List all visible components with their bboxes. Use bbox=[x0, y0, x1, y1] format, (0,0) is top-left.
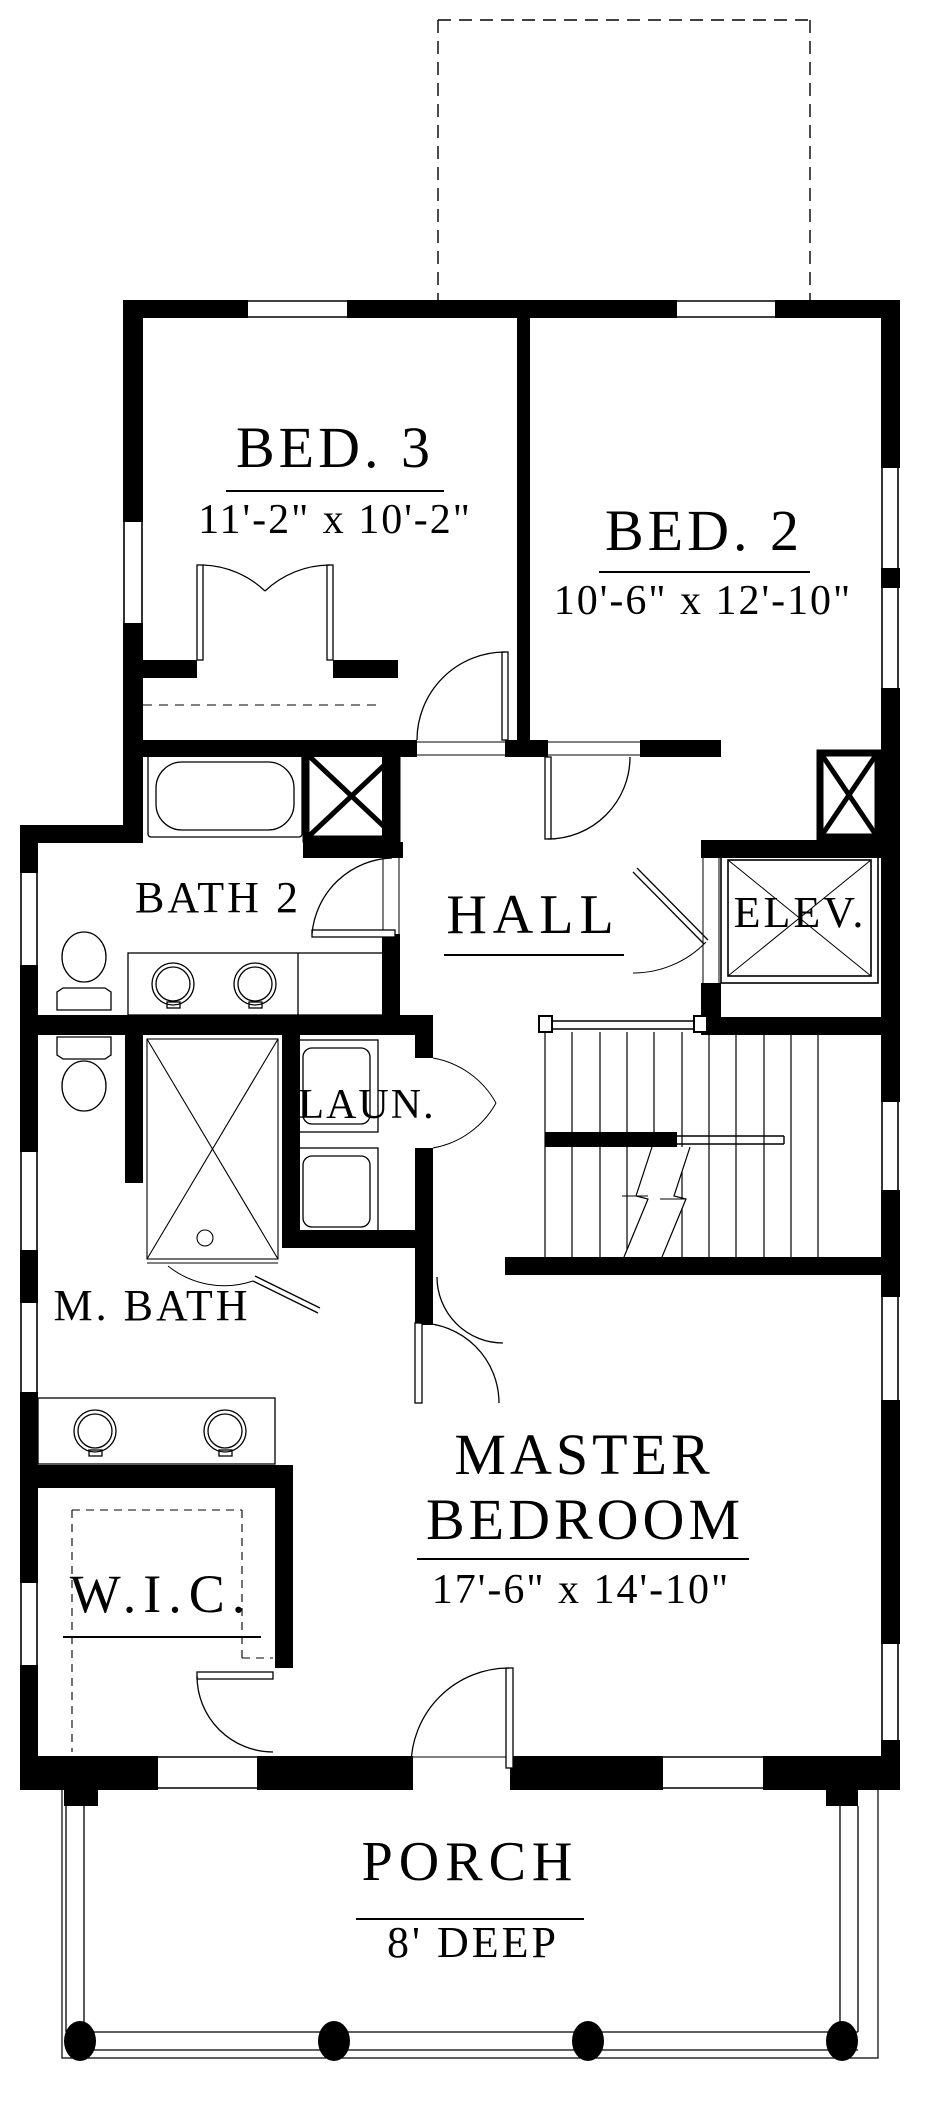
room-label-master-2: BEDROOM bbox=[426, 1491, 744, 1549]
stair-break-line bbox=[622, 1147, 690, 1257]
porch-columns bbox=[64, 2021, 858, 2061]
window-mbath-left-1 bbox=[20, 1152, 38, 1250]
elevator-door bbox=[633, 858, 719, 983]
newel-post-right bbox=[694, 1016, 707, 1032]
porch-column-1 bbox=[64, 2021, 96, 2061]
window-bed2-right-1 bbox=[881, 468, 900, 568]
window-bed2-right-2 bbox=[881, 588, 900, 688]
room-dims-bed2: 10'-6" x 12'-10" bbox=[554, 580, 852, 622]
floor-plan: BED. 3 11'-2" x 10'-2" BED. 2 10'-6" x 1… bbox=[0, 0, 938, 2122]
porch-pilaster-left bbox=[64, 1788, 98, 1806]
bath2-toilet bbox=[57, 932, 111, 1010]
mbath-toilet bbox=[57, 1037, 111, 1111]
porch-door bbox=[411, 1668, 513, 1768]
wall-hall-north-1 bbox=[505, 740, 548, 757]
room-label-wic: W.I.C. bbox=[70, 1567, 253, 1621]
room-label-bed2: BED. 2 bbox=[605, 502, 803, 560]
wall-corridor-west-stub bbox=[415, 1035, 433, 1058]
bath2-vanity bbox=[128, 953, 385, 1015]
wall-stairs-south bbox=[505, 1257, 881, 1275]
room-dims-bed3: 11'-2" x 10'-2" bbox=[198, 499, 472, 541]
closet-double-door bbox=[197, 565, 333, 660]
wall-shower-east bbox=[282, 1035, 300, 1248]
wall-shower-west bbox=[125, 1035, 143, 1183]
window-bed2-top bbox=[677, 300, 775, 318]
window-bed3-top bbox=[248, 300, 347, 318]
wall-stairs-mid bbox=[545, 1132, 677, 1147]
stair-rail-top bbox=[539, 1016, 707, 1032]
wall-bed3-closet-right bbox=[333, 660, 398, 678]
room-label-bed3: BED. 3 bbox=[236, 419, 434, 477]
shower bbox=[147, 1039, 278, 1263]
wall-exterior-top bbox=[123, 300, 900, 318]
window-master-bottom bbox=[663, 1756, 763, 1790]
wall-exterior-bottom-1 bbox=[20, 1756, 158, 1790]
room-label-master-1: MASTER bbox=[454, 1426, 713, 1484]
laundry-doors bbox=[433, 1058, 496, 1148]
wall-exterior-bottom-4 bbox=[763, 1756, 900, 1790]
hall-underline bbox=[444, 954, 624, 956]
porch-column-2 bbox=[318, 2021, 350, 2061]
porch-column-4 bbox=[826, 2021, 858, 2061]
window-bed3-left bbox=[123, 522, 143, 623]
wic-shelf-dashed bbox=[72, 1510, 273, 1752]
room-label-hall: HALL bbox=[446, 887, 619, 943]
wall-corridor-west bbox=[415, 1148, 433, 1325]
room-label-porch: PORCH bbox=[362, 1834, 579, 1890]
stair-handrail-mid bbox=[677, 1136, 784, 1144]
window-mbath-left-2 bbox=[20, 1303, 38, 1392]
wall-mbath-south bbox=[20, 1465, 293, 1488]
porch-pilaster-right bbox=[826, 1788, 858, 1806]
floor-plan-drawing bbox=[0, 0, 938, 2122]
window-stairs-right bbox=[881, 1102, 900, 1190]
room-dims-master: 17'-6" x 14'-10" bbox=[432, 1569, 730, 1611]
window-bath2-left bbox=[20, 873, 38, 965]
wall-bed3-closet-left bbox=[143, 660, 197, 678]
wall-hall-north-2 bbox=[640, 740, 721, 757]
window-wic-bottom bbox=[158, 1756, 257, 1790]
wall-laundry-south bbox=[282, 1230, 433, 1248]
master-entry-door-swing bbox=[437, 1277, 503, 1343]
room-label-master-bath: M. BATH bbox=[53, 1284, 250, 1328]
wall-elev-north bbox=[701, 840, 881, 858]
chase-bed2 bbox=[820, 753, 878, 837]
master-underline bbox=[417, 1558, 749, 1560]
room-label-bath2: BATH 2 bbox=[135, 876, 301, 920]
room-dims-porch: 8' DEEP bbox=[387, 1921, 559, 1965]
wall-bed3-bed2-divider bbox=[517, 318, 530, 757]
dryer bbox=[295, 1148, 378, 1235]
bed3-underline bbox=[226, 490, 444, 492]
bed2-underline bbox=[599, 571, 810, 573]
wall-exterior-bottom-3 bbox=[510, 1756, 663, 1790]
wall-step-left bbox=[20, 825, 143, 843]
room-label-elevator: ELEV. bbox=[734, 891, 867, 935]
window-master-right-2 bbox=[881, 1644, 900, 1740]
wall-wic-east bbox=[275, 1488, 293, 1668]
bath2-door bbox=[312, 858, 399, 937]
roof-outline-dashed bbox=[438, 20, 810, 300]
bed2-door bbox=[545, 742, 640, 839]
porch-column-3 bbox=[572, 2021, 604, 2061]
bathtub bbox=[148, 755, 302, 837]
wic-door bbox=[197, 1672, 273, 1752]
bed3-door bbox=[417, 652, 508, 755]
window-master-right-1 bbox=[881, 1297, 900, 1400]
wic-underline bbox=[63, 1636, 261, 1638]
wall-bath-divider bbox=[20, 1015, 433, 1035]
room-label-laundry: LAUN. bbox=[298, 1084, 435, 1126]
newel-post-left bbox=[539, 1016, 552, 1032]
wall-exterior-bottom-2 bbox=[257, 1756, 413, 1790]
window-wic-left bbox=[20, 1583, 38, 1665]
mbath-vanity bbox=[38, 1398, 275, 1464]
master-bath-door bbox=[415, 1323, 499, 1403]
